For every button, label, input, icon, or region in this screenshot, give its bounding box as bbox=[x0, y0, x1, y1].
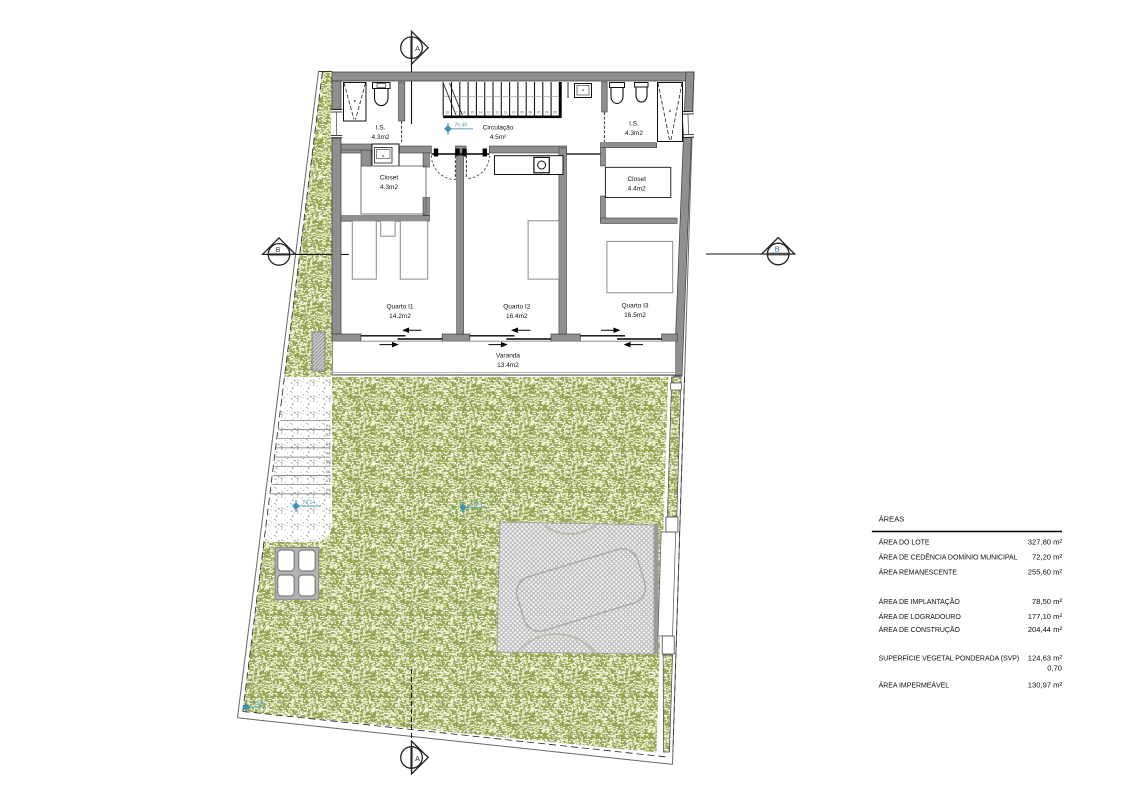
svg-text:Quarto I1: Quarto I1 bbox=[386, 304, 413, 311]
svg-text:124,63 m²: 124,63 m² bbox=[1028, 653, 1063, 662]
svg-text:06: 06 bbox=[326, 469, 331, 474]
svg-text:11: 11 bbox=[504, 111, 508, 115]
svg-text:12: 12 bbox=[495, 111, 499, 115]
svg-text:14: 14 bbox=[479, 111, 483, 115]
svg-text:06: 06 bbox=[545, 111, 549, 115]
svg-text:4.5m²: 4.5m² bbox=[490, 134, 507, 141]
svg-text:Closet: Closet bbox=[380, 175, 399, 182]
svg-text:SUPERFÍCIE VEGETAL PONDERADA (: SUPERFÍCIE VEGETAL PONDERADA (SVP) bbox=[879, 653, 1020, 662]
svg-text:B: B bbox=[276, 245, 281, 254]
svg-text:ÁREA DE CEDÊNCIA DOMÍNIO MUNIC: ÁREA DE CEDÊNCIA DOMÍNIO MUNICIPAL bbox=[879, 553, 1018, 562]
svg-text:13: 13 bbox=[487, 111, 491, 115]
svg-text:Quarto I3: Quarto I3 bbox=[621, 303, 648, 310]
svg-text:ÁREA DE CONSTRUÇÃO: ÁREA DE CONSTRUÇÃO bbox=[879, 625, 961, 634]
svg-text:ÁREA DO LOTE: ÁREA DO LOTE bbox=[879, 538, 930, 547]
svg-text:ÁREAS: ÁREAS bbox=[879, 515, 905, 524]
svg-text:4.3m2: 4.3m2 bbox=[380, 184, 398, 191]
svg-text:05: 05 bbox=[326, 460, 331, 465]
svg-text:177,10 m²: 177,10 m² bbox=[1028, 612, 1063, 621]
svg-text:4.3m2: 4.3m2 bbox=[625, 130, 643, 137]
svg-text:10: 10 bbox=[512, 111, 516, 115]
svg-text:16.5m2: 16.5m2 bbox=[624, 312, 646, 319]
svg-text:08: 08 bbox=[529, 111, 533, 115]
svg-text:4.3m2: 4.3m2 bbox=[371, 134, 389, 141]
svg-text:01: 01 bbox=[326, 423, 331, 428]
svg-text:03: 03 bbox=[326, 441, 331, 446]
svg-text:07: 07 bbox=[326, 478, 331, 483]
svg-text:74.64: 74.64 bbox=[470, 501, 483, 507]
svg-text:Quarto I2: Quarto I2 bbox=[503, 304, 530, 311]
svg-text:14.2m2: 14.2m2 bbox=[389, 313, 411, 320]
svg-text:16.4m2: 16.4m2 bbox=[506, 313, 528, 320]
svg-text:72,20 m²: 72,20 m² bbox=[1032, 553, 1062, 562]
svg-text:I.S.: I.S. bbox=[629, 121, 639, 128]
svg-text:04: 04 bbox=[326, 450, 331, 455]
svg-text:18: 18 bbox=[446, 111, 450, 115]
svg-text:ÁREA REMANESCENTE: ÁREA REMANESCENTE bbox=[879, 567, 958, 576]
svg-text:204,44 m²: 204,44 m² bbox=[1028, 625, 1063, 634]
svg-text:ÁREA DE IMPLANTAÇÃO: ÁREA DE IMPLANTAÇÃO bbox=[879, 597, 961, 606]
svg-text:74.14: 74.14 bbox=[303, 500, 316, 506]
svg-text:73.84: 73.84 bbox=[253, 701, 266, 707]
svg-text:09: 09 bbox=[520, 111, 524, 115]
svg-text:ÁREA IMPERMEÁVEL: ÁREA IMPERMEÁVEL bbox=[879, 681, 950, 690]
svg-text:Circulação: Circulação bbox=[483, 125, 514, 132]
svg-text:4.4m2: 4.4m2 bbox=[628, 186, 646, 193]
svg-text:Closet: Closet bbox=[627, 176, 646, 183]
svg-text:13.4m2: 13.4m2 bbox=[497, 362, 519, 369]
svg-text:Varanda: Varanda bbox=[496, 353, 520, 360]
svg-text:327,80 m²: 327,80 m² bbox=[1028, 538, 1063, 547]
svg-text:B: B bbox=[775, 245, 780, 254]
svg-text:I.S.: I.S. bbox=[376, 125, 386, 132]
svg-text:A: A bbox=[415, 754, 420, 763]
svg-text:17: 17 bbox=[454, 111, 458, 115]
svg-text:A: A bbox=[415, 44, 420, 53]
svg-text:78,50 m²: 78,50 m² bbox=[1032, 597, 1062, 606]
svg-text:15: 15 bbox=[470, 111, 474, 115]
svg-text:130,97 m²: 130,97 m² bbox=[1028, 681, 1063, 690]
svg-text:07: 07 bbox=[537, 111, 541, 115]
svg-text:02: 02 bbox=[326, 432, 331, 437]
svg-text:16: 16 bbox=[462, 111, 466, 115]
svg-text:0,70: 0,70 bbox=[1047, 663, 1062, 672]
svg-text:05: 05 bbox=[553, 111, 557, 115]
svg-text:255,60 m²: 255,60 m² bbox=[1028, 567, 1063, 576]
svg-text:ÁREA DE LOGRADOURO: ÁREA DE LOGRADOURO bbox=[879, 612, 962, 621]
svg-text:76.49: 76.49 bbox=[455, 123, 468, 129]
svg-text:08: 08 bbox=[326, 487, 331, 492]
